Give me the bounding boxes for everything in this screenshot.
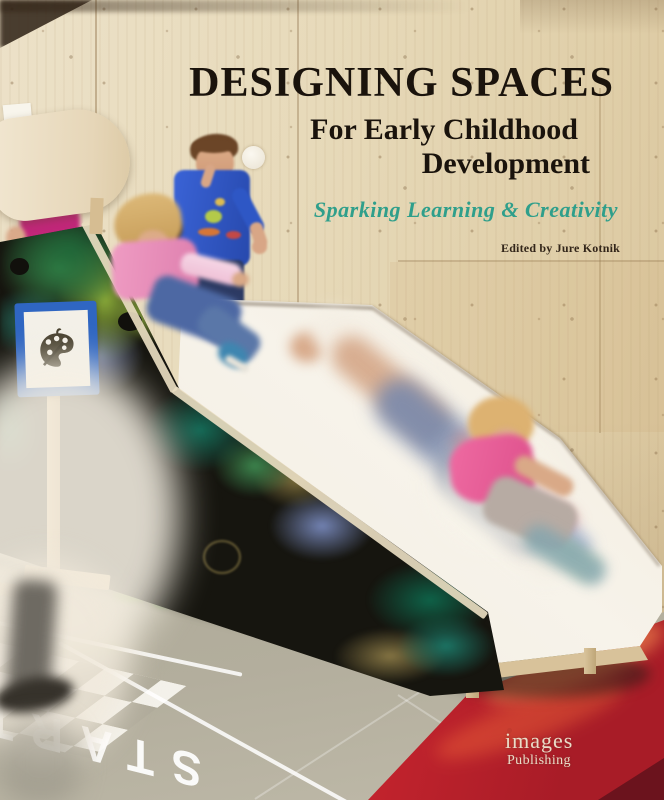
pink-girl-hand [232, 272, 249, 287]
runner-leg-blur [0, 720, 80, 800]
boy-hair [192, 138, 236, 153]
boy-hand [252, 240, 267, 254]
board-hole [10, 258, 29, 275]
publisher-logo: images Publishing [505, 726, 573, 768]
publisher-division: Publishing [507, 754, 573, 768]
tshirt-print [205, 210, 222, 223]
ceiling-shadow [520, 0, 664, 34]
ceiling-shadow [0, 0, 470, 12]
panel-post [89, 198, 103, 234]
slide-leg [584, 648, 596, 674]
book-cover: DESIGNING SPACES For Early Childhood Dev… [0, 0, 664, 800]
tshirt-print [226, 231, 241, 239]
tshirt-print [215, 198, 225, 206]
tshirt-print [198, 228, 220, 236]
book-subtitle-line1: For Early Childhood [189, 115, 578, 145]
book-title: DESIGNING SPACES [189, 62, 614, 104]
wall-seam [398, 260, 664, 262]
book-subtitle-line2: Development [189, 149, 590, 179]
publisher-name: images [505, 730, 573, 752]
chalk-smiley [203, 540, 241, 574]
wall-seam [95, 0, 97, 118]
